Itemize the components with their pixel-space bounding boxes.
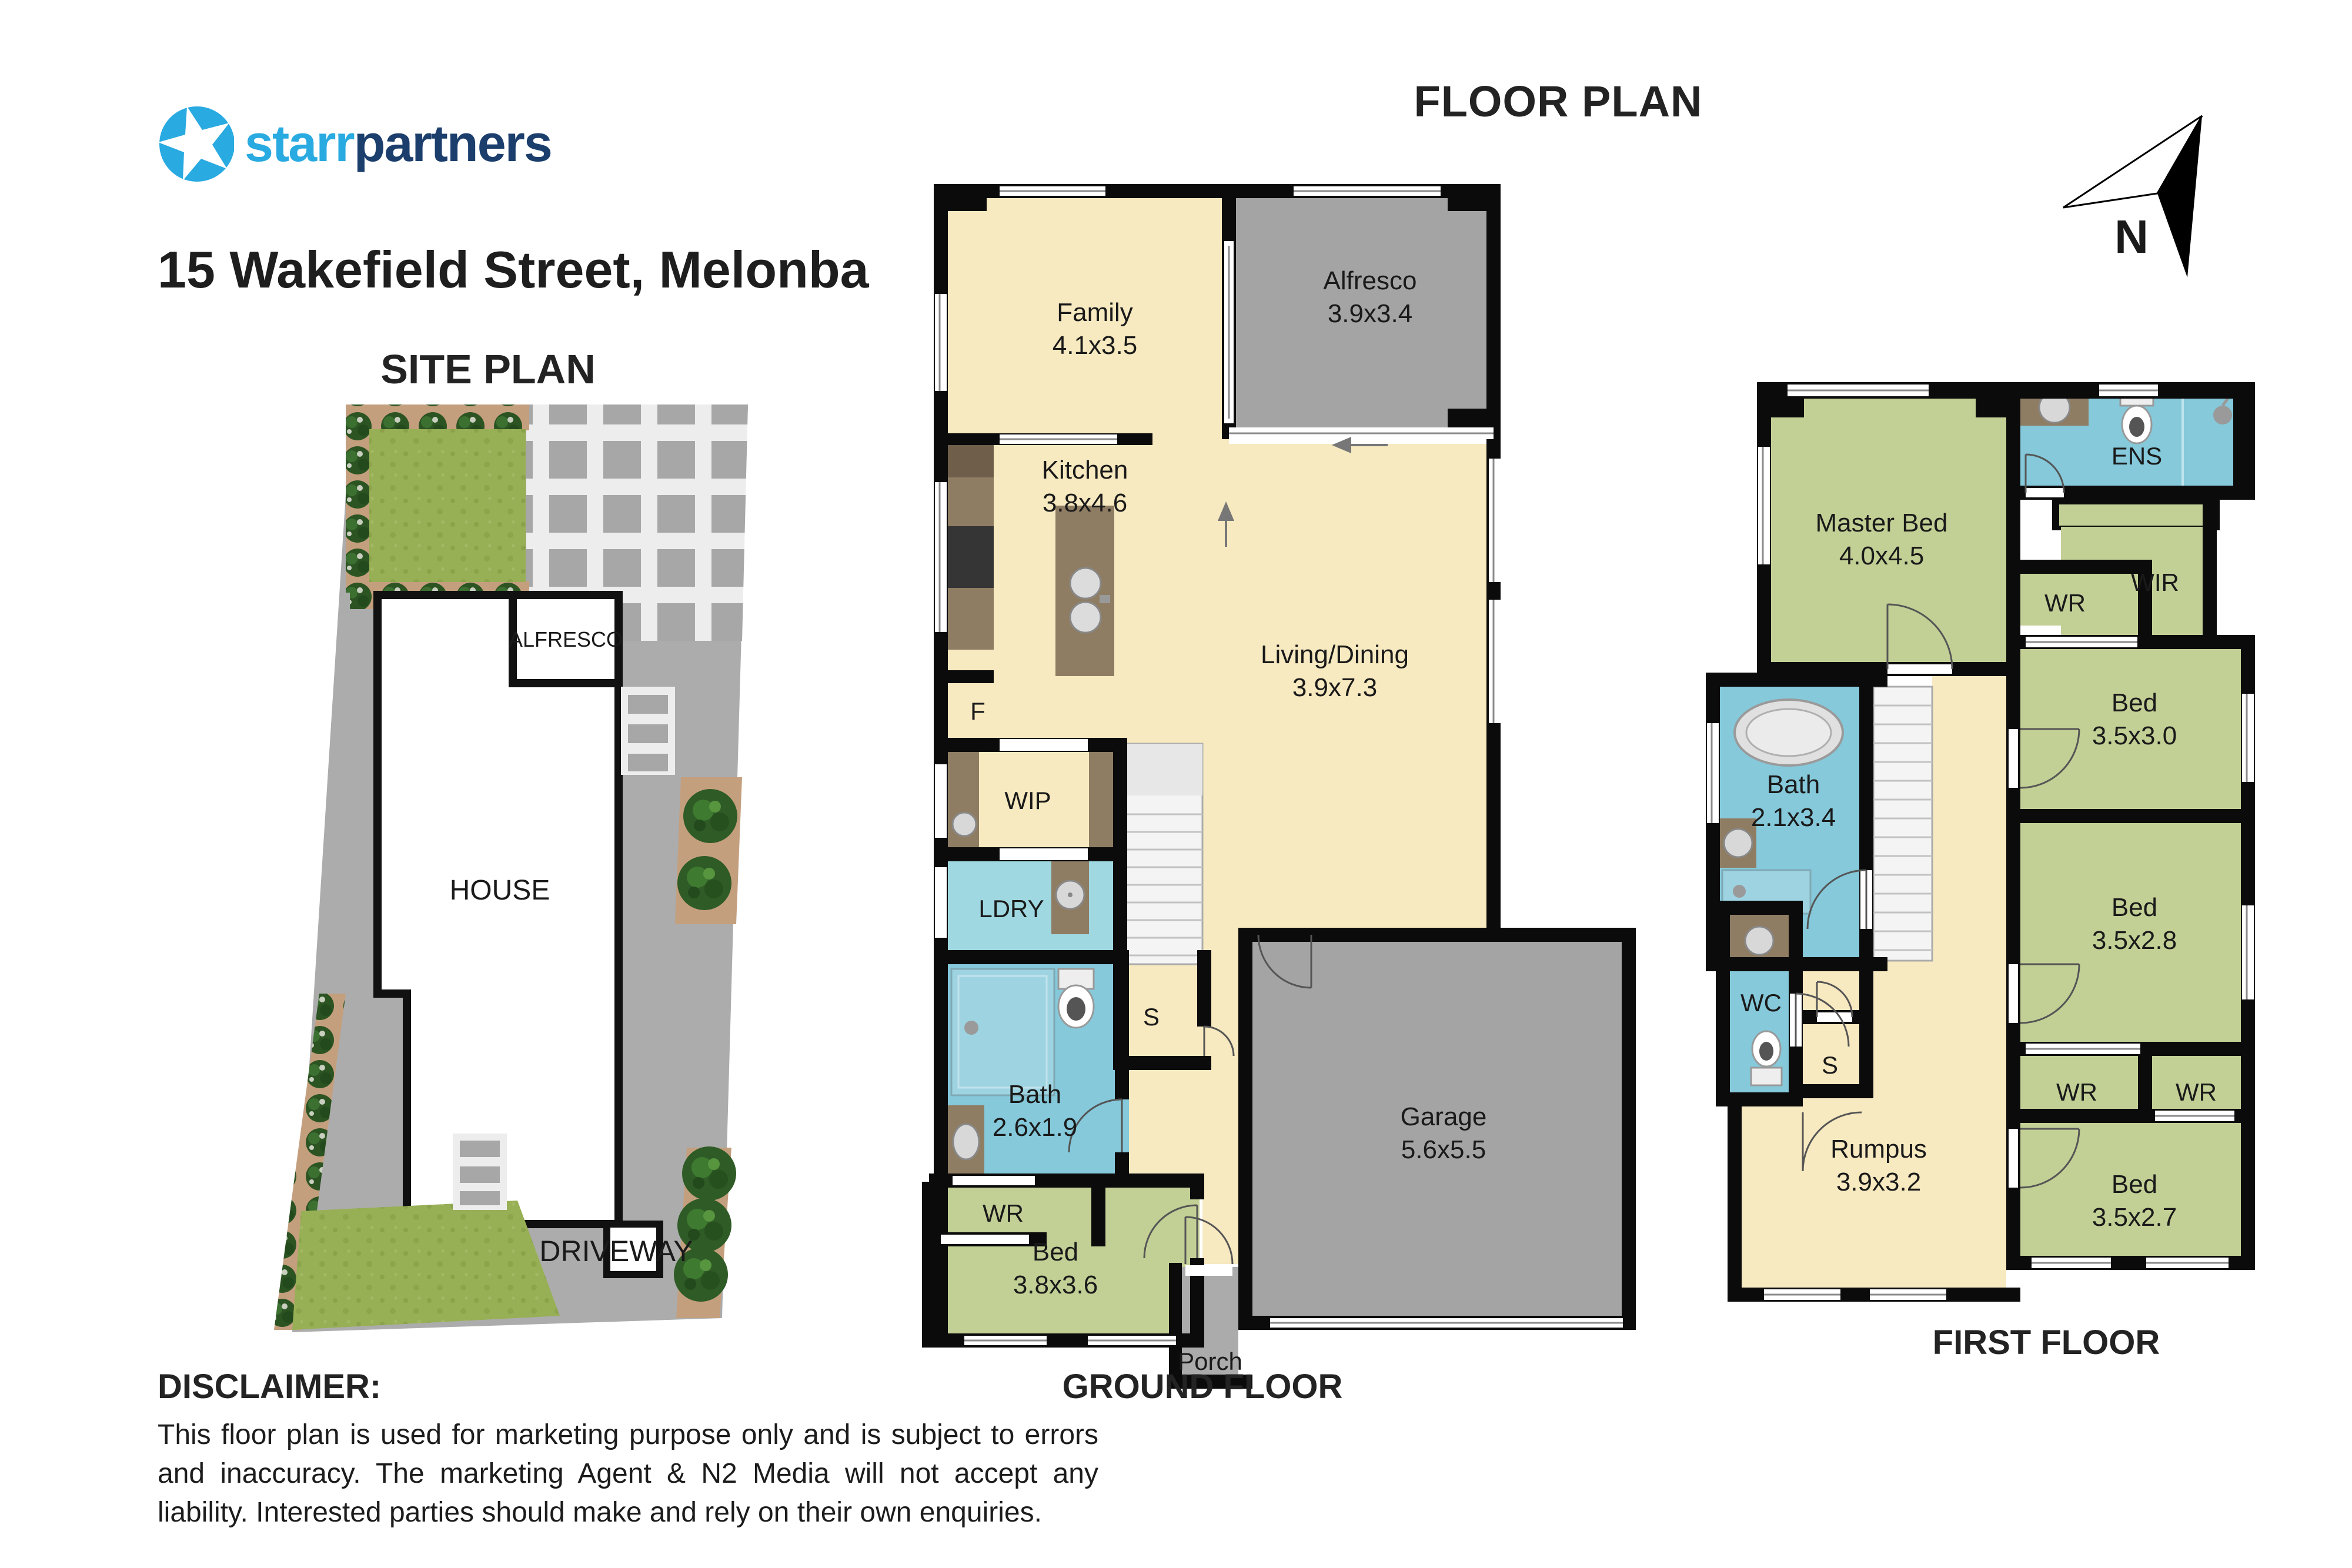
ldry-label: LDRY (978, 895, 1044, 922)
first-floor-caption: FIRST FLOOR (1870, 1323, 2223, 1362)
shrub-row (346, 404, 372, 593)
fridge-label: F (970, 697, 985, 725)
room-rumpus-dims: 3.9x3.2 (1836, 1168, 1921, 1196)
floor-plan-heading: FLOOR PLAN (1341, 76, 1776, 126)
room-living-dims: 3.9x7.3 (1292, 673, 1377, 702)
tree-icon (677, 856, 731, 910)
wr-left-label: WR (2056, 1078, 2097, 1106)
ens-label: ENS (2112, 442, 2162, 470)
site-plan: ALFRESCO HOUSE DRIVEWAY (253, 365, 782, 1376)
shrub-row (347, 404, 529, 430)
store-first-label: S (1822, 1051, 1838, 1079)
room-bed2-label: Bed (2112, 893, 2157, 922)
room-family-dims: 4.1x3.5 (1053, 331, 1137, 360)
room-bath-dims: 2.6x1.9 (993, 1113, 1077, 1142)
brand-wordmark: starrpartners (245, 113, 552, 173)
room-rumpus-label: Rumpus (1830, 1135, 1927, 1164)
laundry-tub-icon (1051, 858, 1089, 934)
room-bed2-dims: 3.5x2.8 (2092, 926, 2177, 955)
brand-word-partners: partners (354, 114, 552, 172)
wc-label: WC (1740, 989, 1782, 1017)
north-label: N (2114, 210, 2149, 263)
room-kitchen-label: Kitchen (1042, 456, 1128, 484)
site-alfresco-label: ALFRESCO (509, 627, 623, 651)
north-arrow-icon: N (2040, 88, 2299, 300)
room-bed-label: Bed (1033, 1238, 1078, 1266)
room-bed-dims: 3.8x3.6 (1013, 1271, 1098, 1299)
room-alfresco-dims: 3.9x3.4 (1328, 299, 1412, 328)
room-bed1-dims: 3.5x3.0 (2092, 721, 2177, 750)
room-bath-first-dims: 2.1x3.4 (1751, 803, 1836, 832)
site-front-lawn (292, 1201, 560, 1330)
stairs (1120, 744, 1202, 964)
ground-floor-plan: Family 4.1x3.5 Alfresco 3.9x3.4 Kitchen … (906, 170, 1670, 1417)
disclaimer-heading: DISCLAIMER: (158, 1367, 381, 1406)
wr-label: WR (983, 1199, 1024, 1227)
site-house-label: HOUSE (450, 875, 550, 906)
toilet-icon (1751, 1068, 1782, 1085)
room-bed1-label: Bed (2112, 688, 2157, 717)
wip-label: WIP (1004, 787, 1051, 814)
floor-plan-page: starrpartners 15 Wakefield Street, Melon… (0, 0, 2352, 1568)
room-alfresco-label: Alfresco (1324, 266, 1417, 295)
wir-shelf (2059, 504, 2213, 526)
brand-logo: starrpartners (156, 105, 552, 182)
site-driveway-label: DRIVEWAY (539, 1235, 693, 1268)
sink-icon (953, 813, 976, 836)
page-title: 15 Wakefield Street, Melonba (158, 240, 869, 300)
room-garage-label: Garage (1401, 1102, 1487, 1131)
room-kitchen-dims: 3.8x4.6 (1043, 489, 1127, 517)
tree-icon (682, 1146, 736, 1201)
room-living-label: Living/Dining (1261, 640, 1409, 669)
first-floor-plan: Master Bed 4.0x4.5 ENS WIR WR Bed 3.5x3.… (1693, 370, 2323, 1335)
disclaimer-body: This floor plan is used for marketing pu… (158, 1416, 1098, 1532)
room-bath-first-label: Bath (1767, 770, 1820, 799)
brand-word-starr: starr (245, 114, 354, 172)
room-master-label: Master Bed (1816, 509, 1948, 537)
room-bed3-label: Bed (2112, 1170, 2157, 1199)
hall-first-lower (1873, 961, 2006, 1109)
wir-label: WIR (2131, 569, 2179, 596)
ground-floor-caption: GROUND FLOOR (1026, 1367, 1379, 1406)
room-bath-label: Bath (1008, 1080, 1062, 1109)
wr-right-label: WR (2176, 1078, 2217, 1106)
wr-master-label: WR (2044, 589, 2086, 617)
store-label: S (1143, 1003, 1160, 1031)
site-rear-lawn (369, 429, 526, 582)
room-family-label: Family (1057, 298, 1133, 327)
room-garage-dims: 5.6x5.5 (1401, 1135, 1486, 1164)
shower-icon (2213, 406, 2232, 424)
brand-star-icon (156, 105, 234, 182)
stairs-first (1873, 687, 1932, 961)
site-house-outline (377, 595, 619, 1224)
room-bed3-dims: 3.5x2.7 (2092, 1203, 2177, 1232)
tree-icon (683, 789, 737, 843)
room-master-dims: 4.0x4.5 (1839, 541, 1924, 570)
